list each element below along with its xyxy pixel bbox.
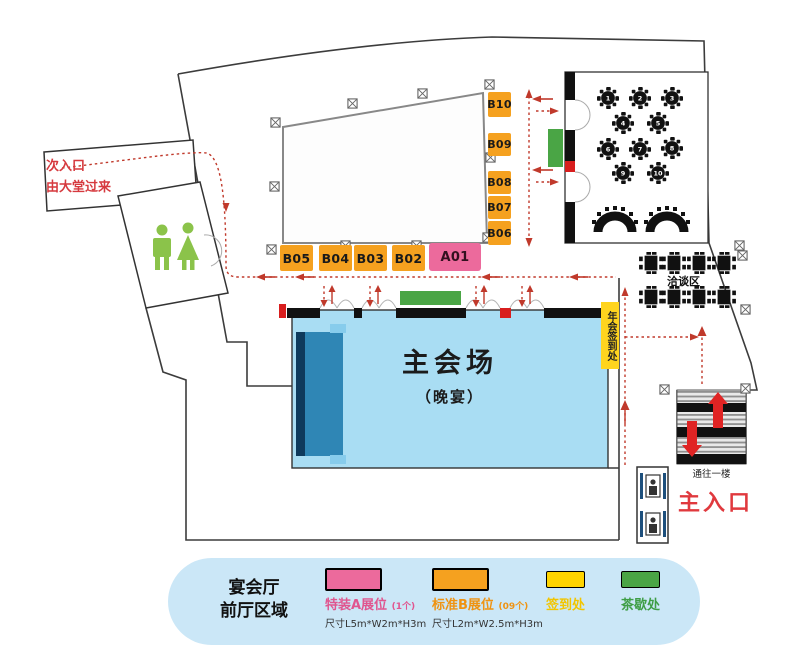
table-number: 9: [621, 170, 626, 178]
checkin-door-marker: [565, 161, 575, 172]
tea-break-swatch: [621, 571, 660, 588]
checkin-door-marker: [279, 304, 286, 318]
booth-b09: B09: [488, 133, 511, 156]
special-booth-swatch: [325, 568, 382, 591]
secondary-entrance-line1: 次入口: [46, 157, 111, 178]
legend-area-title-line2: 前厅区域: [196, 600, 312, 623]
legend-standard-booth-size: 尺寸L2m*W2.5m*H3m: [432, 615, 543, 630]
table-number: 7: [638, 146, 643, 154]
legend-special-booth-size: 尺寸L5m*W2m*H3m: [325, 615, 426, 630]
main-hall-title: 主会场: [292, 341, 608, 380]
booth-b10: B10: [488, 92, 511, 117]
table-number: 2: [638, 95, 643, 103]
legend-item-tea-break: 茶歇处: [621, 558, 681, 645]
legend-standard-booth-text: 标准B展位: [432, 598, 494, 613]
legend-special-booth-text: 特装A展位: [325, 598, 387, 613]
table-number: 8: [670, 145, 675, 153]
legend-area-title-line1: 宴会厅: [196, 577, 312, 600]
main-hall-label: 主会场 （晚宴）: [292, 341, 608, 407]
main-hall-subtitle: （晚宴）: [292, 386, 608, 407]
booth-b04: B04: [319, 245, 352, 271]
legend-checkin-text: 签到处: [546, 598, 585, 613]
legend-item-standard-booth: 标准B展位 (09个) 尺寸L2m*W2.5m*H3m: [432, 558, 542, 645]
annual-checkin-label: 年会签到处: [601, 302, 619, 369]
to-first-floor-label: 通往一楼: [677, 466, 746, 480]
elevators: [637, 467, 668, 543]
booth-b07: B07: [488, 196, 511, 219]
legend-item-special-booth: 特装A展位 (1个) 尺寸L5m*W2m*H3m: [325, 558, 430, 645]
legend-special-booth-name: 特装A展位 (1个): [325, 594, 415, 613]
negotiation-area-label: 洽谈区: [667, 273, 700, 289]
tea-break-rect: [400, 291, 461, 305]
floorplan-page: 1 2 3 4 5 6 7 8 9 10: [0, 0, 800, 661]
legend-standard-booth-name: 标准B展位 (09个): [432, 594, 528, 613]
stairs-to-first-floor: [677, 390, 746, 464]
table-number: 6: [606, 146, 611, 154]
table-number: 4: [621, 120, 626, 128]
booth-b06: B06: [488, 221, 511, 245]
checkin-door-marker: [500, 308, 511, 318]
booth-b05: B05: [280, 245, 313, 271]
tea-break-rect: [548, 129, 563, 167]
booth-b03: B03: [354, 245, 387, 271]
secondary-entrance-label: 次入口 由大堂过来: [46, 157, 111, 199]
booth-b02: B02: [392, 245, 425, 271]
legend-special-booth-count: (1个): [392, 602, 416, 612]
main-entrance-label: 主入口: [678, 485, 753, 517]
table-number: 3: [670, 95, 675, 103]
booth-b08: B08: [488, 171, 511, 194]
legend-tea-break-text: 茶歇处: [621, 598, 660, 613]
standard-booth-swatch: [432, 568, 489, 591]
legend: 宴会厅 前厅区域 特装A展位 (1个) 尺寸L5m*W2m*H3m 标准B展位 …: [168, 558, 700, 645]
table-number: 10: [653, 170, 663, 178]
table-number: 1: [606, 95, 611, 103]
restroom: [118, 182, 228, 308]
legend-checkin-name: 签到处: [546, 594, 585, 613]
legend-standard-booth-count: (09个): [498, 602, 528, 612]
secondary-entrance-line2: 由大堂过来: [46, 178, 111, 199]
legend-item-checkin: 签到处: [546, 558, 606, 645]
legend-tea-break-name: 茶歇处: [621, 594, 660, 613]
central-zone: [283, 93, 487, 243]
legend-area-title: 宴会厅 前厅区域: [196, 577, 312, 623]
table-number: 5: [656, 120, 661, 128]
booth-a01: A01: [429, 243, 481, 271]
checkin-swatch: [546, 571, 585, 588]
